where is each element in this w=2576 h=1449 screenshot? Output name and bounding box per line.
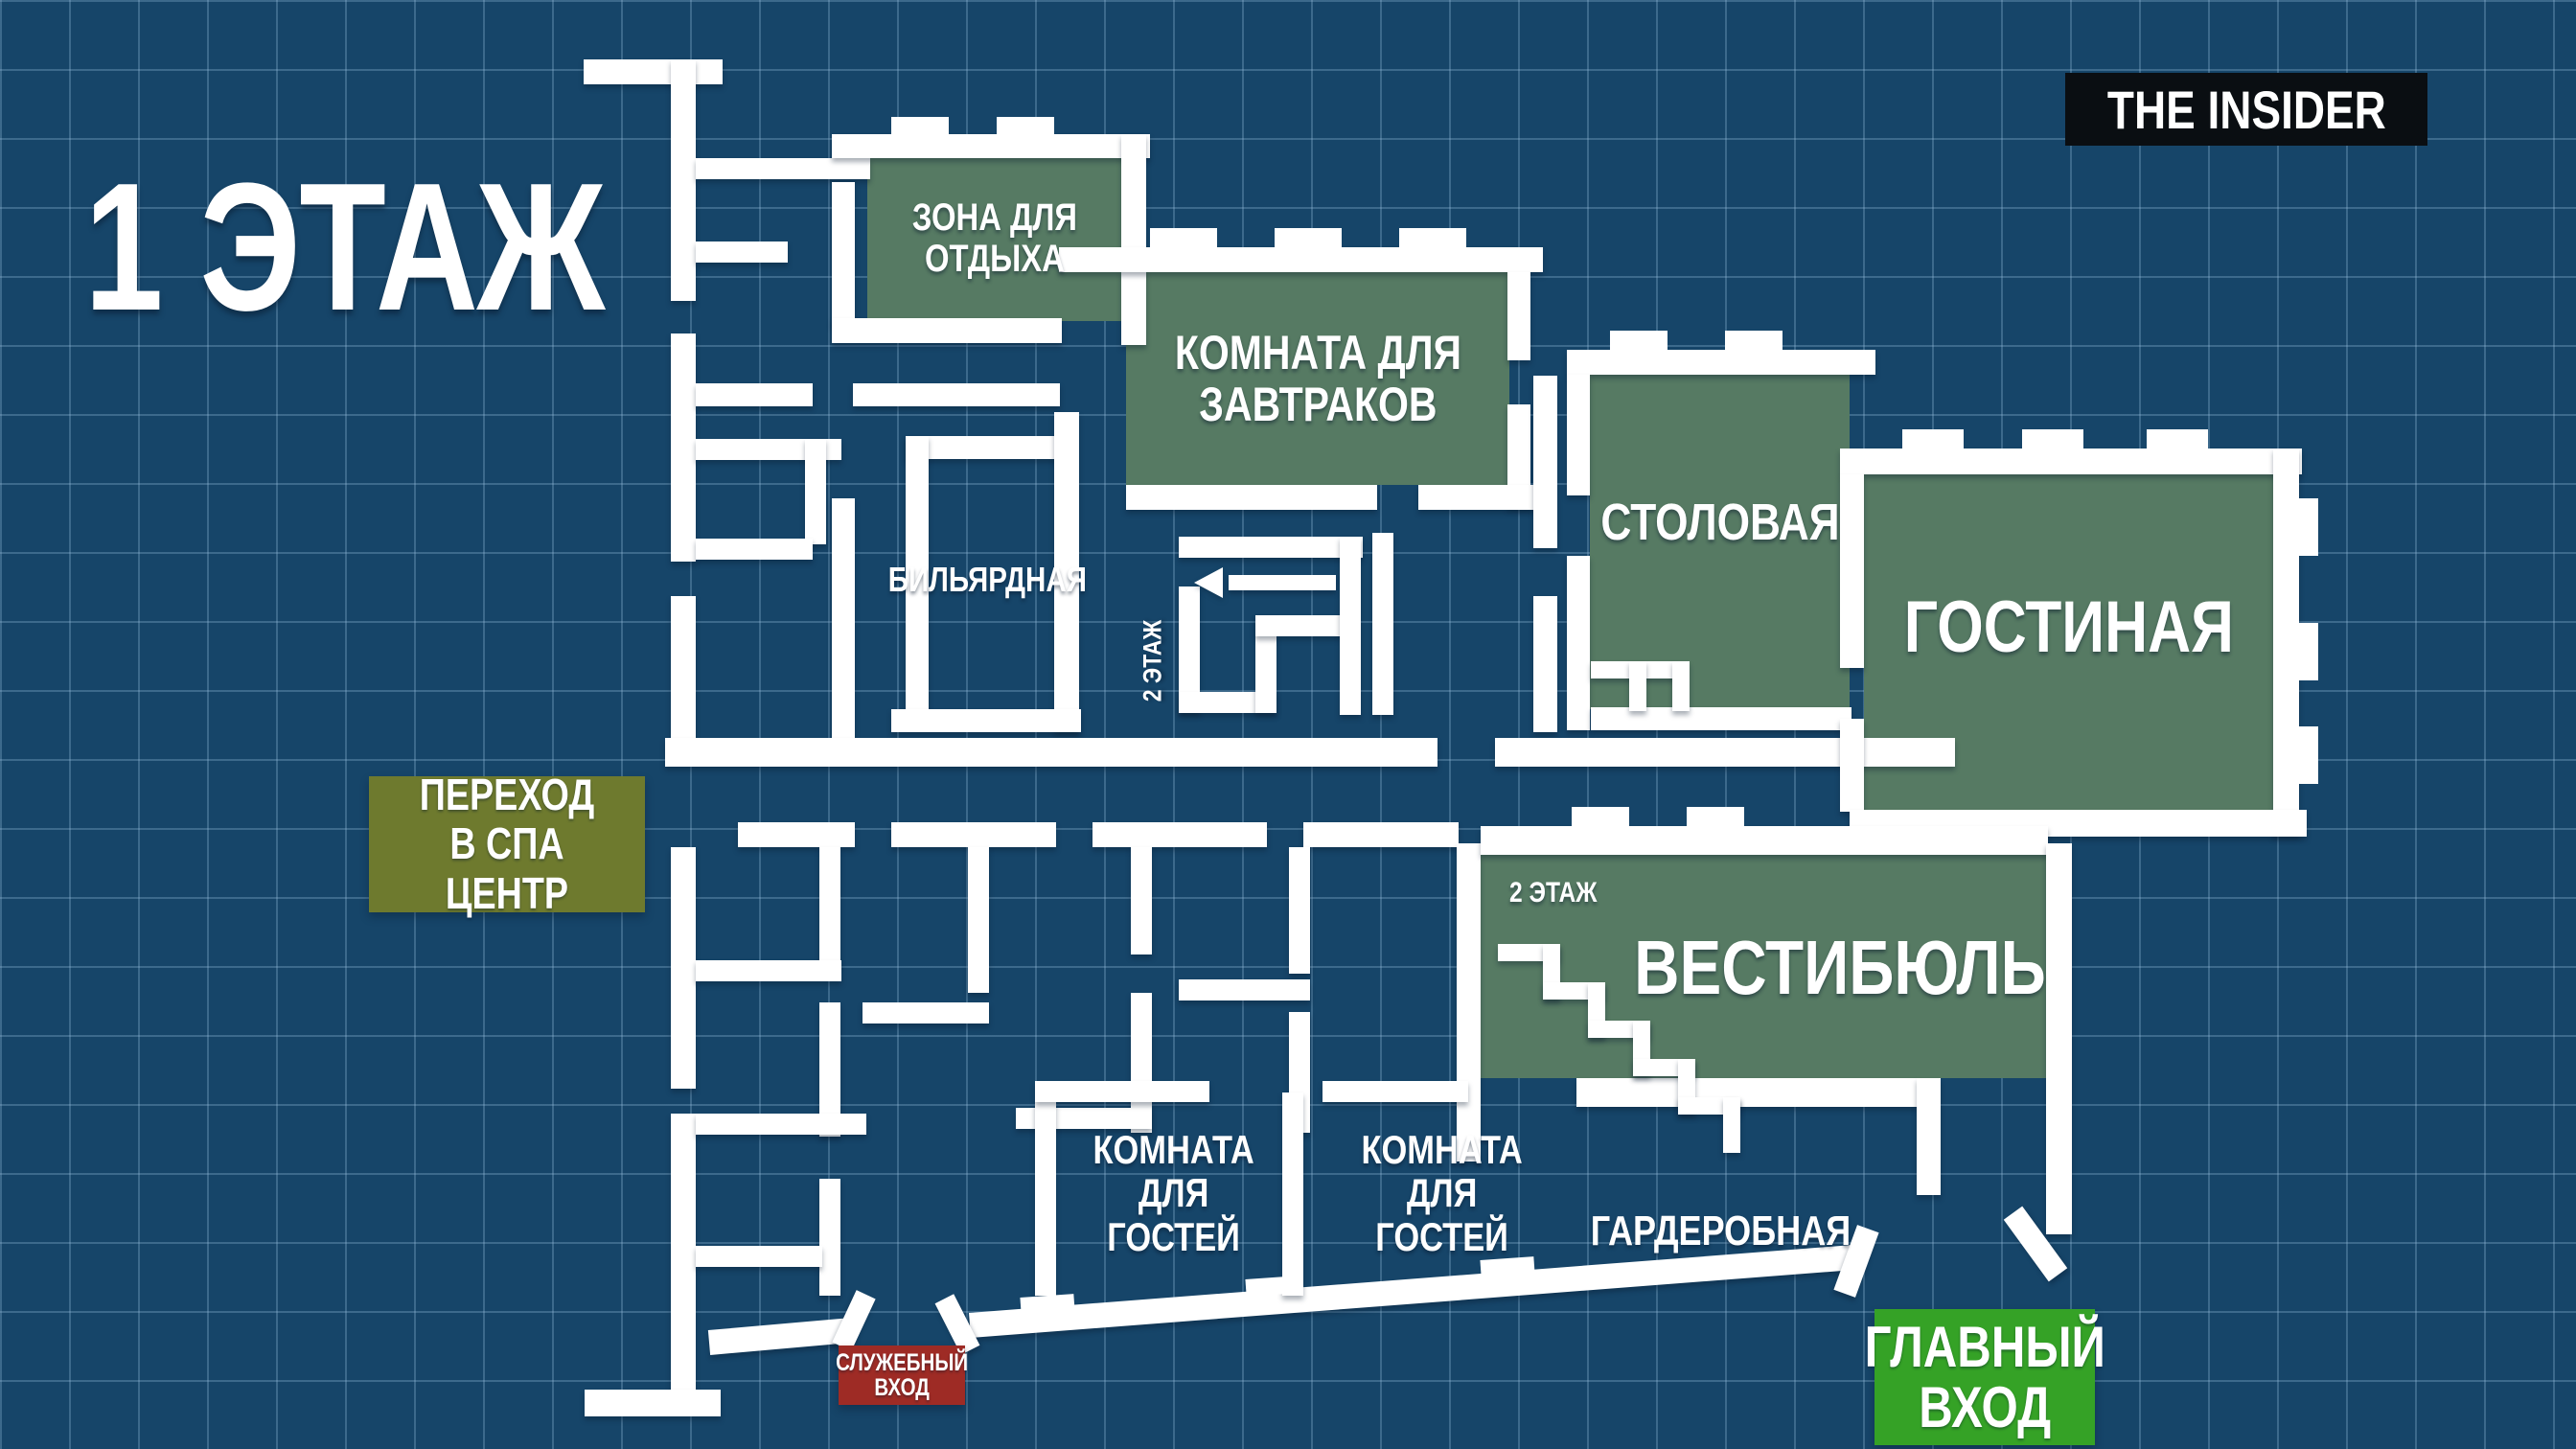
the-insider-logo: THE INSIDER: [2065, 73, 2427, 146]
wall: [696, 539, 813, 560]
service-entrance-badge: СЛУЖЕБНЫЙ ВХОД: [839, 1345, 965, 1405]
wall: [862, 1002, 989, 1023]
label-breakfast-room: КОМНАТА ДЛЯ ЗАВТРАКОВ: [1126, 272, 1509, 485]
wall: [1131, 847, 1152, 954]
stairs-upper: [1179, 537, 1363, 558]
wall: [832, 134, 1150, 158]
wall: [805, 439, 826, 544]
spa-passage-text: ПЕРЕХОД В СПА ЦЕНТР: [394, 770, 620, 919]
window-notch: [1725, 331, 1782, 350]
wall: [891, 822, 1056, 847]
wall: [696, 383, 813, 406]
guest-room-2-text: КОМНАТА ДЛЯ ГОСТЕЙ: [1362, 1128, 1523, 1258]
wall: [696, 960, 841, 981]
wall: [819, 1179, 840, 1296]
label-living-room: ГОСТИНАЯ: [1864, 474, 2273, 781]
logo-text: THE INSIDER: [2107, 79, 2386, 141]
wall: [671, 847, 696, 1089]
wall: [1567, 350, 1875, 375]
wall: [2046, 843, 2072, 1234]
wall: [2273, 448, 2299, 836]
window-notch: [1610, 331, 1667, 350]
wall: [1533, 596, 1557, 732]
wall: [1672, 661, 1690, 711]
main-entrance-text: ГЛАВНЫЙ ВХОД: [1864, 1317, 2104, 1437]
wall: [1576, 1078, 1919, 1107]
wall: [738, 822, 855, 847]
wall: [696, 241, 788, 263]
window-notch: [1687, 807, 1744, 826]
wall: [671, 59, 696, 301]
living-room-text: ГОСТИНАЯ: [1903, 588, 2233, 667]
wall: [1481, 826, 2048, 855]
wall: [1121, 134, 1146, 247]
stairs-lower: [1723, 1097, 1740, 1153]
wall: [696, 1114, 866, 1135]
wall: [1059, 247, 1543, 272]
wall: [1840, 719, 1864, 812]
wall: [1917, 1078, 1941, 1195]
wall: [819, 847, 840, 964]
wall: [853, 383, 1060, 406]
wall: [1533, 376, 1557, 548]
page-title: 1 ЭТАЖ: [84, 161, 750, 334]
window-notch: [891, 117, 949, 136]
service-entrance-text: СЛУЖЕБНЫЙ ВХОД: [836, 1350, 968, 1401]
wall: [671, 1114, 696, 1401]
floor2-upper-text: 2 ЭТАЖ: [1138, 620, 1166, 701]
wall: [1289, 847, 1310, 974]
window-notch: [1275, 228, 1342, 247]
wall: [1303, 822, 1459, 847]
main-entrance-badge: ГЛАВНЫЙ ВХОД: [1874, 1309, 2095, 1445]
wall: [832, 318, 1062, 343]
wall: [671, 596, 696, 742]
wall: [708, 1318, 856, 1355]
window-notch: [1902, 429, 1964, 448]
stairs-upper: [1372, 533, 1393, 715]
floor2-vestibule-text: 2 ЭТАЖ: [1509, 878, 1597, 908]
wall: [1035, 1102, 1056, 1296]
window-notch: [997, 117, 1054, 136]
window-notch: [1399, 228, 1466, 247]
wall: [968, 847, 989, 993]
window-notch: [2299, 726, 2318, 784]
wall: [696, 1246, 822, 1267]
label-billiard-room: БИЛЬЯРДНАЯ: [891, 436, 1083, 724]
vestibule-text: ВЕСТИБЮЛЬ: [1634, 927, 2046, 1009]
window-notch: [2299, 623, 2318, 680]
floor-plan-canvas: 1 ЭТАЖ THE INSIDER: [0, 0, 2576, 1449]
wall: [832, 498, 855, 744]
billiard-room-text: БИЛЬЯРДНАЯ: [887, 562, 1086, 599]
wall: [1418, 485, 1543, 510]
wall: [665, 738, 1437, 767]
wall: [1629, 661, 1646, 711]
label-floor2-upper: 2 ЭТАЖ: [1110, 594, 1196, 728]
stairs-upper: [1255, 615, 1344, 636]
window-notch: [2299, 498, 2318, 556]
wall: [1126, 485, 1377, 510]
label-cloakroom: ГАРДЕРОБНАЯ: [1581, 1203, 1859, 1260]
wall: [696, 158, 870, 179]
wall: [1507, 272, 1530, 360]
wall: [1179, 979, 1310, 1000]
wall: [1035, 1081, 1209, 1102]
window-notch: [2022, 429, 2083, 448]
window-notch: [2147, 429, 2208, 448]
stairs-upper: [1340, 537, 1361, 715]
wall: [584, 59, 723, 84]
label-guest-room-1: КОМНАТА ДЛЯ ГОСТЕЙ: [1059, 1102, 1289, 1284]
wall: [585, 1390, 721, 1416]
label-floor2-vestibule: 2 ЭТАЖ: [1491, 874, 1616, 912]
window-notch: [1572, 807, 1629, 826]
wall: [1092, 822, 1267, 847]
cloakroom-text: ГАРДЕРОБНАЯ: [1590, 1208, 1850, 1254]
label-vestibule: ВЕСТИБЮЛЬ: [1629, 918, 2051, 1018]
dining-room-text: СТОЛОВАЯ: [1600, 494, 1839, 550]
wall: [832, 182, 855, 326]
window-notch: [1150, 228, 1217, 247]
spa-passage-badge: ПЕРЕХОД В СПА ЦЕНТР: [369, 776, 645, 912]
rest-zone-text: ЗОНА ДЛЯ ОТДЫХА: [911, 197, 1076, 280]
floor-title-text: 1 ЭТАЖ: [84, 161, 604, 334]
breakfast-room-text: КОМНАТА ДЛЯ ЗАВТРАКОВ: [1174, 327, 1460, 430]
label-dining-room: СТОЛОВАЯ: [1590, 412, 1850, 632]
label-rest-zone: ЗОНА ДЛЯ ОТДЫХА: [867, 156, 1121, 321]
wall: [1322, 1081, 1468, 1102]
stairs-arrow-shaft: [1229, 575, 1336, 590]
wall: [1567, 375, 1590, 495]
guest-room-1-text: КОМНАТА ДЛЯ ГОСТЕЙ: [1093, 1128, 1254, 1258]
label-guest-room-2: КОМНАТА ДЛЯ ГОСТЕЙ: [1327, 1102, 1557, 1284]
stairs-arrow-icon: [1194, 567, 1223, 598]
wall: [1567, 556, 1590, 730]
wall: [671, 333, 696, 562]
wall: [1840, 448, 2302, 474]
